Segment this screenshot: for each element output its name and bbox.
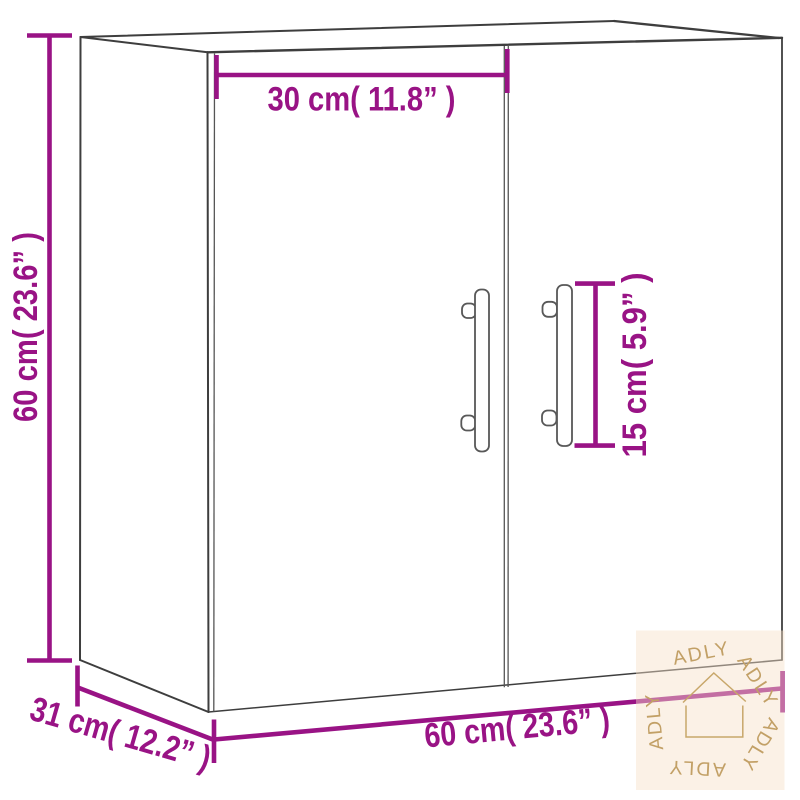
svg-text:15 cm( 5.9” ): 15 cm( 5.9” ) bbox=[616, 273, 654, 458]
svg-text:30 cm( 11.8” ): 30 cm( 11.8” ) bbox=[268, 80, 456, 118]
svg-text:ADLY: ADLY bbox=[667, 755, 726, 780]
svg-text:60 cm( 23.6” ): 60 cm( 23.6” ) bbox=[7, 232, 45, 422]
